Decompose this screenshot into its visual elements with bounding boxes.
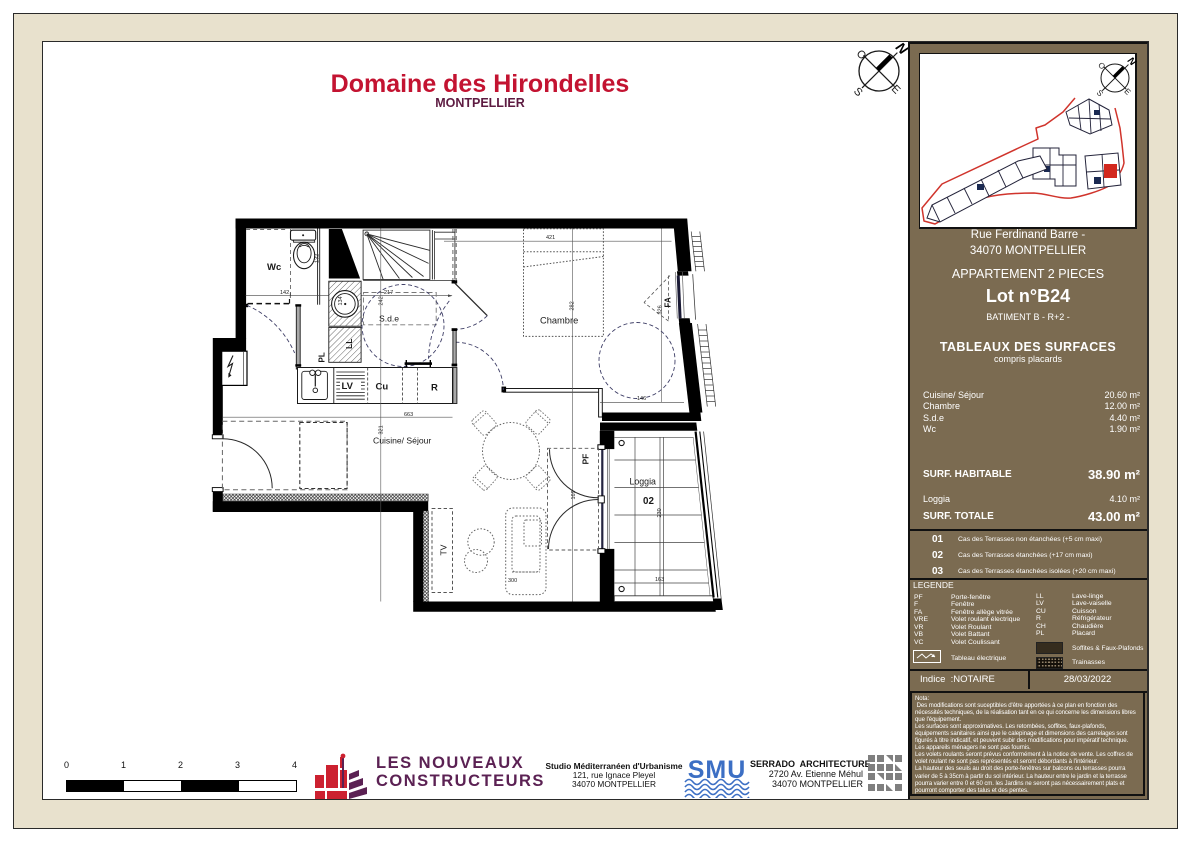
svg-text:321: 321	[379, 425, 385, 434]
svg-text:134: 134	[338, 296, 344, 305]
svg-text:02: 02	[643, 496, 654, 507]
svg-text:282: 282	[570, 301, 576, 310]
svg-text:163: 163	[655, 577, 664, 583]
svg-text:421: 421	[546, 235, 555, 241]
svg-text:300: 300	[508, 578, 517, 584]
svg-text:LL: LL	[344, 339, 354, 349]
svg-text:242: 242	[379, 296, 385, 305]
svg-text:217: 217	[384, 290, 393, 296]
svg-text:169: 169	[571, 490, 577, 499]
svg-text:Cu: Cu	[376, 382, 389, 393]
svg-text:FA: FA	[664, 297, 673, 307]
svg-text:146: 146	[637, 396, 646, 402]
svg-text:S.d.e: S.d.e	[379, 314, 399, 324]
svg-text:326: 326	[658, 305, 664, 314]
svg-text:PF: PF	[581, 454, 591, 465]
svg-text:LV: LV	[342, 381, 354, 392]
svg-text:TV: TV	[439, 544, 449, 555]
svg-text:E: E	[889, 83, 903, 97]
svg-text:PL: PL	[318, 352, 327, 362]
svg-text:230: 230	[657, 508, 663, 517]
svg-text:142: 142	[280, 290, 289, 296]
svg-text:S: S	[851, 85, 865, 99]
svg-text:Wc: Wc	[267, 262, 281, 273]
svg-text:Chambre: Chambre	[540, 316, 578, 326]
svg-text:Cuisine/ Séjour: Cuisine/ Séjour	[373, 436, 431, 446]
svg-text:132: 132	[315, 254, 321, 263]
svg-text:Loggia: Loggia	[630, 477, 657, 487]
svg-text:O: O	[854, 48, 869, 63]
svg-text:R: R	[431, 383, 438, 394]
